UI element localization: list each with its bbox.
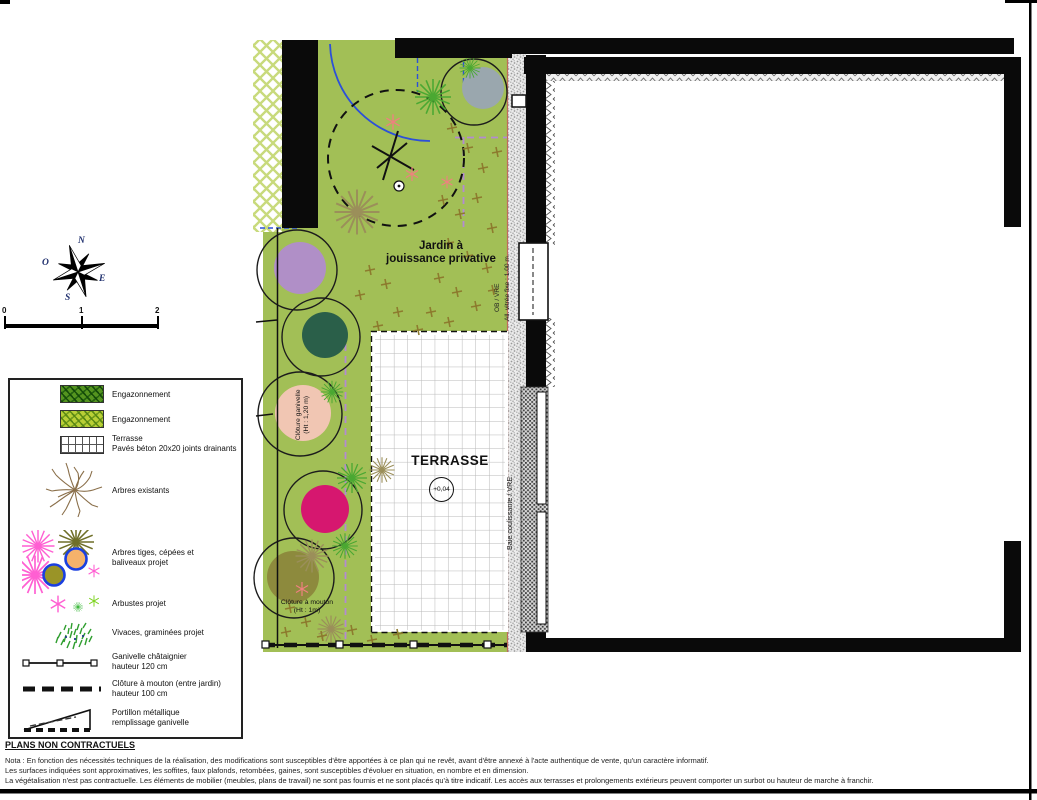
terrace-label: TERRASSE bbox=[388, 453, 512, 469]
legend-item-label: Ganivelle châtaignier hauteur 120 cm bbox=[112, 652, 238, 673]
legend-symbol-project-trees bbox=[22, 530, 108, 594]
fence-ganivelle-note: Clôture ganivelle (Ht : 1,20 m) bbox=[295, 378, 311, 452]
legend: Engazonnement Engazonnement Terrasse Pav… bbox=[8, 378, 243, 739]
legend-symbol-ganivelle bbox=[22, 655, 98, 671]
scale-tick bbox=[81, 316, 83, 329]
legend-symbol-existing-tree bbox=[42, 457, 108, 523]
legend-item-label: Portillon métallique remplissage ganivel… bbox=[112, 708, 238, 729]
legend-item-label: Clôture à mouton (entre jardin) hauteur … bbox=[112, 679, 238, 700]
window-note-fixed: All. vitrée fixe : 1.00 m bbox=[504, 256, 511, 321]
scale-label-1: 1 bbox=[79, 306, 83, 315]
legend-symbol-portillon bbox=[22, 704, 94, 732]
compass-south: S bbox=[65, 293, 70, 303]
window-note-ob: OB / VRE bbox=[494, 283, 501, 312]
legend-item-label: Engazonnement bbox=[112, 390, 238, 400]
scale-label-0: 0 bbox=[2, 306, 6, 315]
legend-symbol-grass-dark bbox=[60, 385, 104, 403]
footer-title: PLANS NON CONTRACTUELS bbox=[5, 740, 135, 750]
compass-north: N bbox=[78, 236, 85, 246]
compass-east: E bbox=[99, 274, 105, 284]
legend-symbol-cloture-mouton bbox=[22, 682, 102, 696]
legend-symbol-grass-light bbox=[60, 410, 104, 428]
scale-tick bbox=[4, 316, 6, 329]
footer-note: Nota : En fonction des nécessités techni… bbox=[5, 756, 709, 765]
door-handle bbox=[512, 95, 526, 107]
legend-item-label: Arbres existants bbox=[112, 486, 238, 496]
legend-item-label: Vivaces, graminées projet bbox=[112, 628, 238, 638]
scale-tick bbox=[157, 316, 159, 329]
footer-note: La végétalisation n'est pas contractuell… bbox=[5, 776, 873, 785]
scale-label-2: 2 bbox=[155, 306, 159, 315]
window-note-bay: Baie coulissante / VRE bbox=[505, 477, 514, 550]
garden-label: Jardin à jouissance privative bbox=[378, 240, 504, 266]
legend-item-label: Arbustes projet bbox=[112, 599, 238, 609]
legend-item-label: Arbres tiges, cépées et baliveaux projet bbox=[112, 548, 238, 569]
legend-symbol-terrace-pavers bbox=[60, 436, 104, 454]
legend-symbol-vivaces bbox=[52, 618, 100, 654]
crosshatch-area bbox=[253, 40, 282, 232]
fixed-window bbox=[519, 243, 548, 320]
footer-note: Les surfaces indiquées sont approximativ… bbox=[5, 766, 528, 775]
legend-item-label: Terrasse Pavés béton 20x20 joints draina… bbox=[112, 434, 238, 455]
fence-mouton-note: Clôture à mouton (Ht : 1m) bbox=[268, 599, 346, 615]
legend-item-label: Engazonnement bbox=[112, 415, 238, 425]
legend-symbol-arbustes bbox=[48, 593, 112, 615]
compass-west: O bbox=[42, 258, 49, 268]
plan-sheet: Jardin à jouissance privative TERRASSE +… bbox=[0, 0, 1037, 800]
sliding-bay bbox=[521, 387, 548, 632]
terrace-level-badge: +0,04 bbox=[429, 477, 454, 502]
